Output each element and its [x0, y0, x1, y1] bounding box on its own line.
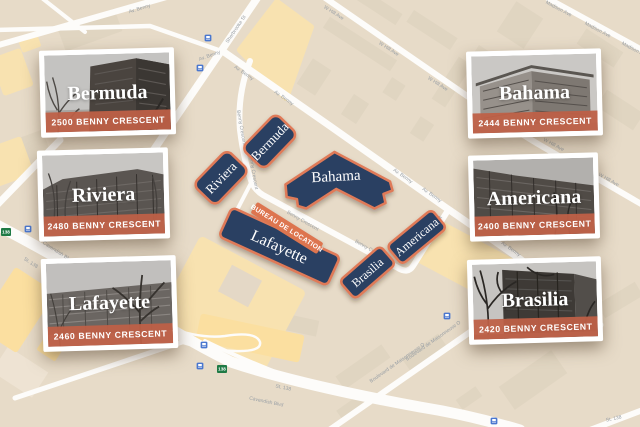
svg-text:Benny Crescent: Benny Crescent — [235, 110, 247, 147]
svg-text:138: 138 — [218, 367, 226, 372]
svg-text:St. 138: St. 138 — [22, 256, 39, 270]
svg-text:Madison Ave: Madison Ave — [620, 41, 640, 60]
svg-text:138: 138 — [2, 230, 10, 235]
svg-text:St. 138: St. 138 — [275, 383, 292, 392]
svg-text:Cavendish Blvd: Cavendish Blvd — [249, 395, 284, 408]
svg-text:Av. Benny: Av. Benny — [392, 167, 414, 185]
svg-text:Bahama: Bahama — [311, 168, 361, 187]
